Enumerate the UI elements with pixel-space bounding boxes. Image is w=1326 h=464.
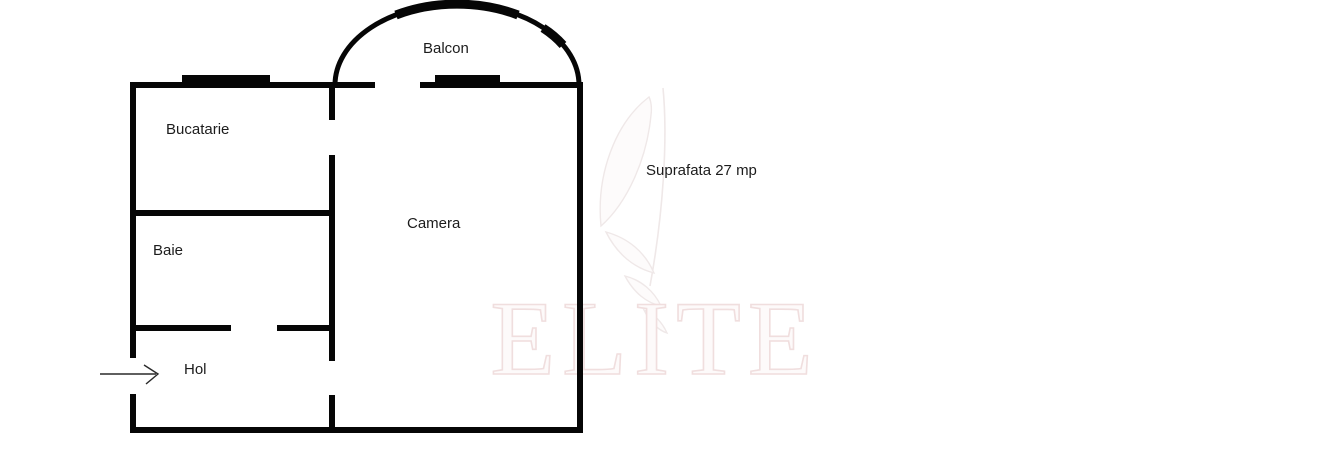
room-label-baie: Baie	[153, 242, 183, 259]
balcony-arc-railing-2	[543, 28, 563, 45]
wall-divider-bucatarie-baie	[130, 210, 335, 216]
wall-bottom	[130, 427, 583, 433]
wall-left-upper	[130, 82, 136, 358]
plan-drawing-layer	[0, 0, 1326, 464]
watermark-text: ELITE	[490, 280, 819, 397]
window-camera	[435, 75, 500, 84]
room-label-hol: Hol	[184, 361, 207, 378]
area-note: Suprafata 27 mp	[646, 162, 757, 179]
room-label-camera: Camera	[407, 215, 460, 232]
wall-divider-baie-hol-left	[130, 325, 231, 331]
wall-divider-baie-hol-right	[277, 325, 335, 331]
wall-interior-vertical-upper	[329, 82, 335, 120]
wall-right	[577, 82, 583, 433]
floor-plan-canvas: ELITE Balcon Bucatarie Camera Baie Hol S…	[0, 0, 1326, 464]
entrance-arrow-icon	[100, 365, 158, 384]
window-bucatarie	[182, 75, 270, 83]
room-label-balcon: Balcon	[423, 40, 469, 57]
watermark-layer: ELITE	[0, 0, 1326, 464]
balcony-arc-railing	[396, 4, 518, 15]
watermark-logo	[600, 88, 667, 333]
room-label-bucatarie: Bucatarie	[166, 121, 229, 138]
wall-interior-vertical-lower	[329, 395, 335, 433]
